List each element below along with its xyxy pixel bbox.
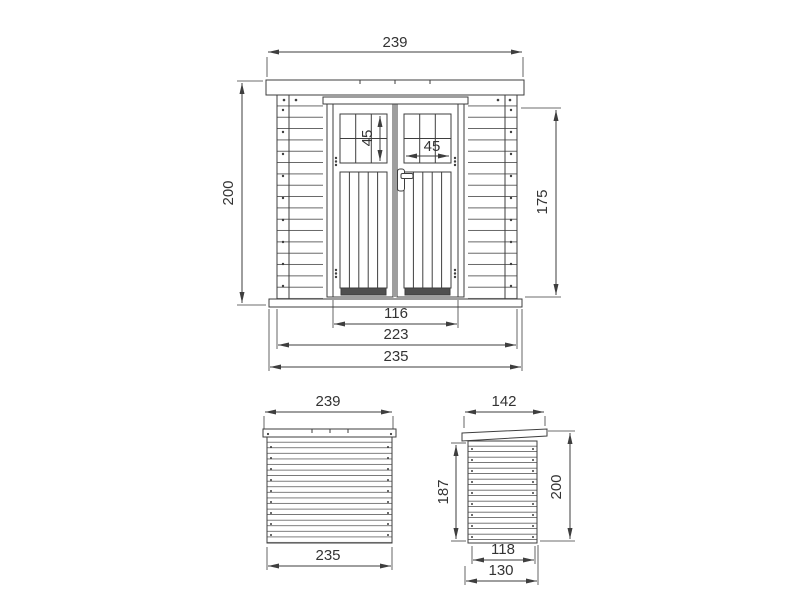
dim-rear-base-width: 235 bbox=[267, 547, 392, 570]
dim-label-side-roof-depth: 142 bbox=[491, 393, 516, 410]
dim-side-roof-depth: 142 bbox=[464, 393, 545, 428]
dim-label-front-side-wall-height: 175 bbox=[534, 189, 551, 214]
dim-label-side-base-depth: 130 bbox=[488, 562, 513, 579]
front-elevation-view: 239 200 175 45 45 bbox=[220, 34, 561, 371]
dim-label-front-base-width: 235 bbox=[383, 348, 408, 365]
rear-elevation-view: 239 235 bbox=[263, 393, 396, 570]
dim-front-roof-width: 239 bbox=[267, 34, 523, 77]
dim-side-rear-wall-height: 187 bbox=[435, 443, 466, 541]
dim-label-side-rear-wall-height: 187 bbox=[435, 479, 452, 504]
door-header-trim bbox=[323, 97, 468, 104]
door-jamb-right bbox=[458, 104, 464, 297]
door-jamb-left bbox=[327, 104, 333, 297]
dim-label-side-wall-depth: 118 bbox=[491, 541, 515, 558]
dim-side-wall-depth: 118 bbox=[472, 541, 535, 564]
rear-wall bbox=[267, 437, 392, 543]
double-door bbox=[323, 97, 468, 299]
dim-label-door-width: 116 bbox=[384, 305, 408, 322]
front-roof bbox=[266, 80, 524, 95]
dim-label-window-height: 45 bbox=[359, 130, 376, 147]
dim-label-front-overall-height: 200 bbox=[220, 180, 237, 205]
dim-front-overall-height: 200 bbox=[220, 81, 266, 305]
door-leaf-right bbox=[397, 104, 458, 297]
rear-roof bbox=[263, 429, 396, 437]
dim-label-rear-roof-width: 239 bbox=[315, 393, 340, 410]
shed-technical-drawing: 239 200 175 45 45 bbox=[0, 0, 800, 600]
dim-label-side-overall-height: 200 bbox=[548, 474, 565, 499]
dim-label-front-wall-width: 223 bbox=[383, 326, 408, 343]
drawing-canvas: 239 200 175 45 45 bbox=[0, 0, 800, 600]
dim-front-side-wall-height: 175 bbox=[521, 108, 561, 297]
dim-side-overall-height: 200 bbox=[540, 431, 575, 541]
side-wall bbox=[468, 441, 537, 543]
dim-label-rear-base-width: 235 bbox=[315, 547, 340, 564]
side-roof bbox=[462, 429, 547, 441]
dim-rear-roof-width: 239 bbox=[264, 393, 393, 429]
side-elevation-view: 142 187 200 118 bbox=[435, 393, 575, 585]
dim-label-window-width: 45 bbox=[424, 138, 441, 155]
dim-label-front-roof-width: 239 bbox=[382, 34, 407, 51]
